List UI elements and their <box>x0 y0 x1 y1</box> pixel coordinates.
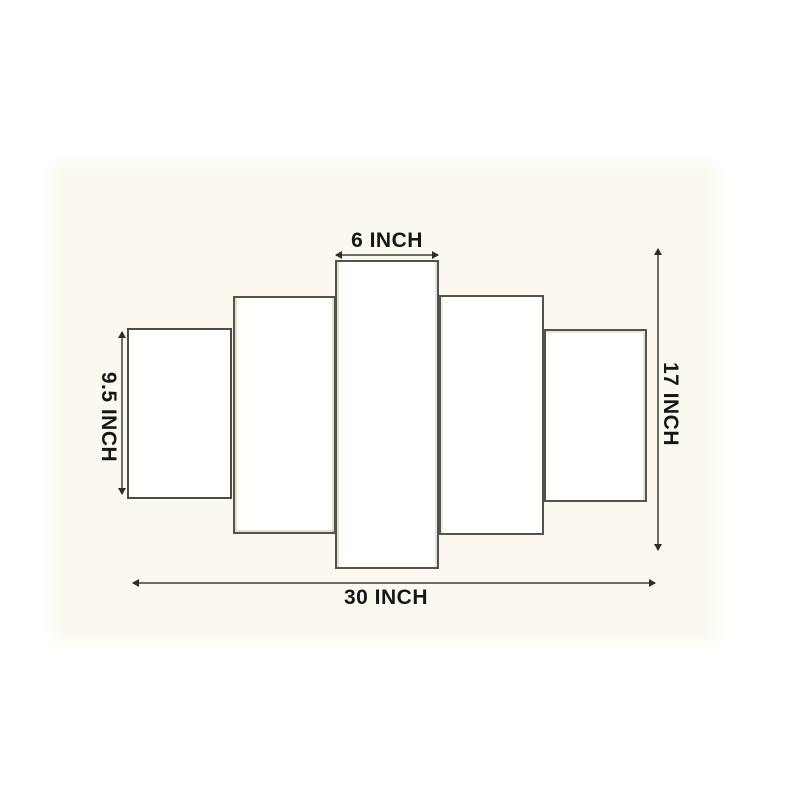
product-dimension-diagram: 6 INCH 9.5 INCH 17 INCH 30 INCH <box>0 0 800 800</box>
canvas-panel-1 <box>127 328 232 499</box>
bottom-width-label: 30 INCH <box>286 586 486 610</box>
dimension-line <box>336 254 438 256</box>
dimension-line <box>121 332 123 494</box>
canvas-panel-4 <box>439 295 544 535</box>
top-width-label: 6 INCH <box>312 229 462 253</box>
left-height-label: 9.5 INCH <box>96 372 120 462</box>
canvas-panel-2 <box>233 296 336 534</box>
arrow-down-icon <box>654 544 662 551</box>
canvas-panel-5 <box>544 329 647 502</box>
arrow-right-icon <box>649 579 656 587</box>
canvas-panel-3-center <box>335 260 439 569</box>
arrow-up-icon <box>654 248 662 255</box>
arrow-left-icon <box>132 579 139 587</box>
arrow-down-icon <box>118 488 126 495</box>
arrow-up-icon <box>118 331 126 338</box>
dimension-line <box>133 582 655 584</box>
right-height-label: 17 INCH <box>658 362 682 446</box>
